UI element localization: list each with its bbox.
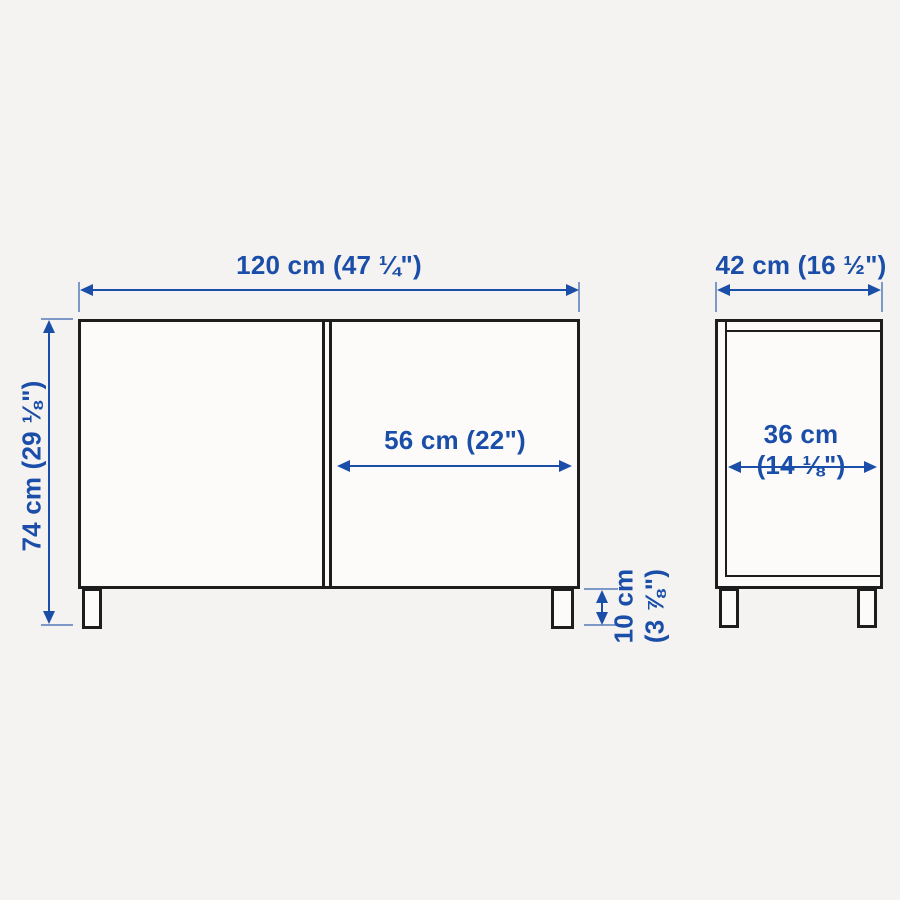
front-height-label: 74 cm (29 ⅛") — [17, 380, 48, 551]
side-right-leg — [857, 588, 877, 628]
front-height-arrow — [48, 331, 50, 614]
side-left-leg — [719, 588, 739, 628]
side-inner-depth-label-line1: 36 cm — [757, 419, 846, 450]
side-inner-depth-label-line2: (14 ⅛") — [757, 450, 846, 481]
arrowhead-left-icon — [80, 284, 93, 296]
arrowhead-up-icon — [43, 320, 55, 333]
front-leg-height-label-line2: (3 ⅞") — [639, 569, 670, 644]
side-depth-label: 42 cm (16 ½") — [715, 250, 886, 281]
extension-line — [881, 282, 883, 312]
extension-line — [41, 624, 73, 626]
arrowhead-down-icon — [43, 611, 55, 624]
front-right-leg — [551, 588, 574, 629]
dimension-diagram: 120 cm (47 ¼") 74 cm (29 ⅛") 56 cm (22") — [0, 0, 900, 900]
side-depth-arrow — [728, 289, 871, 291]
arrowhead-right-icon — [868, 284, 881, 296]
side-door-edge-line — [725, 322, 727, 577]
arrowhead-right-icon — [566, 284, 579, 296]
arrowhead-right-icon — [864, 461, 877, 473]
arrowhead-right-icon — [559, 460, 572, 472]
front-width-arrow — [90, 289, 569, 291]
side-inner-depth-arrow — [739, 466, 867, 468]
front-leg-height-label: 10 cm (3 ⅞") — [608, 569, 669, 644]
front-door-width-label: 56 cm (22") — [384, 425, 526, 456]
arrowhead-left-icon — [717, 284, 730, 296]
front-width-label: 120 cm (47 ¼") — [236, 250, 422, 281]
arrowhead-up-icon — [596, 590, 608, 603]
side-bottom-panel-line — [727, 575, 880, 577]
side-inner-depth-label: 36 cm (14 ⅛") — [757, 419, 846, 480]
arrowhead-left-icon — [728, 461, 741, 473]
arrowhead-left-icon — [337, 460, 350, 472]
front-left-leg — [82, 588, 102, 629]
front-door-width-arrow — [348, 465, 562, 467]
arrowhead-down-icon — [596, 612, 608, 625]
front-door-divider — [322, 322, 332, 586]
front-leg-height-label-line1: 10 cm — [608, 569, 639, 644]
side-top-panel-line — [727, 330, 880, 332]
